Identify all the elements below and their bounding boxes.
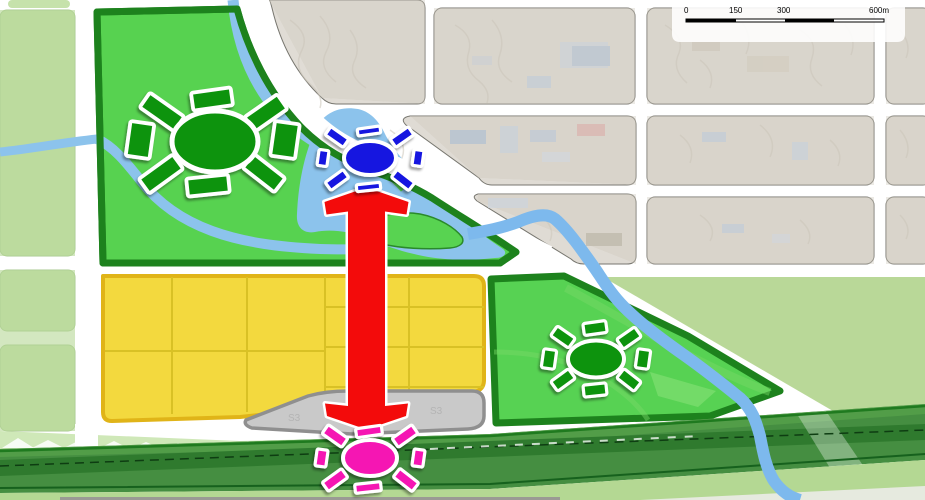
svg-text:600m: 600m (869, 6, 889, 15)
svg-text:0: 0 (684, 6, 689, 15)
svg-text:S3: S3 (288, 413, 301, 424)
svg-text:150: 150 (729, 6, 743, 15)
svg-text:300: 300 (777, 6, 791, 15)
svg-text:S3: S3 (430, 406, 443, 417)
